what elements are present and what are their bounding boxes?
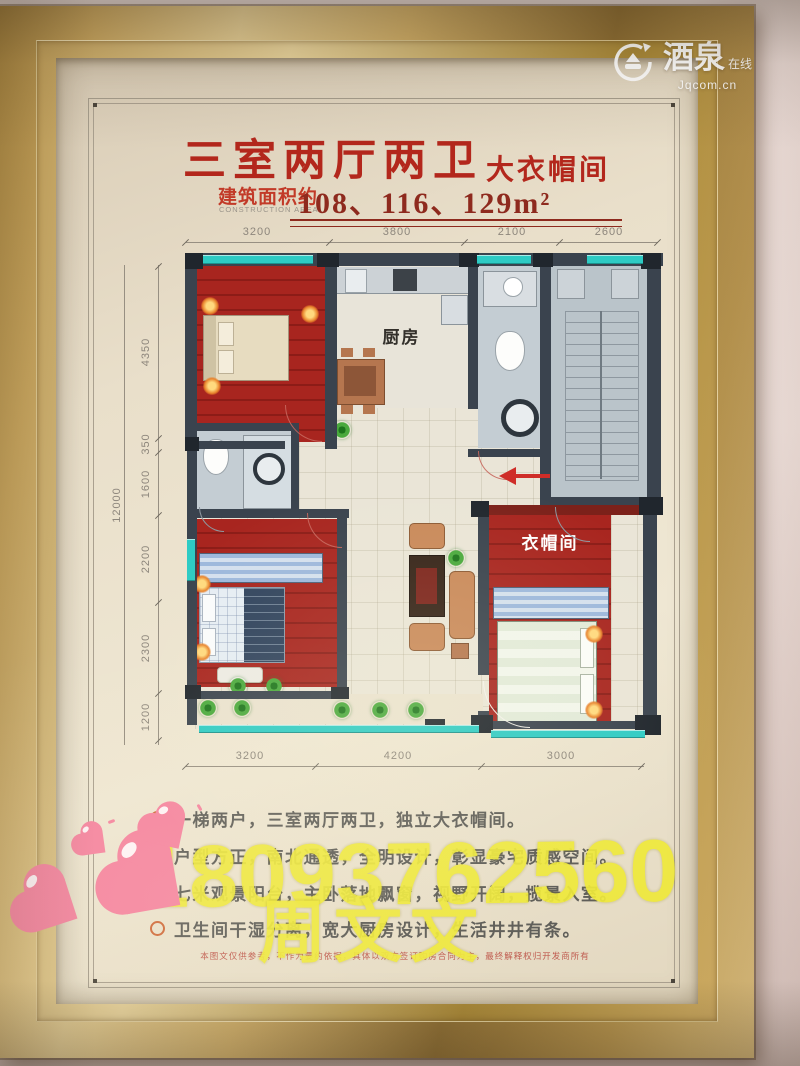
bed — [203, 315, 289, 381]
column-block — [185, 253, 203, 269]
wall-segment — [187, 423, 299, 431]
stair-landing-mat — [557, 269, 585, 299]
dim-label: 2100 — [498, 226, 526, 238]
fridge — [441, 295, 468, 325]
stairs — [565, 311, 639, 481]
blanket — [244, 588, 284, 662]
lamp-glow — [585, 701, 603, 719]
headboard — [204, 316, 216, 380]
shower-drain — [253, 453, 285, 485]
plant — [233, 699, 251, 717]
wall-segment — [291, 423, 299, 513]
wall-segment — [187, 691, 347, 699]
area-values: 108、116、129m² — [298, 178, 551, 222]
column-block — [317, 253, 339, 267]
dim-label: 12000 — [111, 487, 123, 523]
column-block — [185, 437, 199, 451]
wardrobe — [199, 553, 323, 583]
window-strip — [587, 255, 643, 264]
heart-gloss — [24, 873, 40, 890]
wall-segment — [478, 721, 657, 729]
lamp-glow — [203, 377, 221, 395]
window-strip — [187, 539, 195, 581]
site-logo-icon — [610, 39, 656, 85]
column-block — [459, 253, 479, 267]
dim-label: 4350 — [140, 338, 152, 366]
dim-label: 1200 — [140, 703, 152, 731]
column-block — [471, 501, 489, 517]
heart-sticker — [118, 852, 181, 915]
pillow — [218, 350, 234, 374]
entrance-arrow-shaft — [514, 474, 550, 478]
window-strip — [477, 255, 531, 264]
site-url: Jqcom.cn — [663, 78, 752, 92]
floor-plan: 厨房 — [185, 253, 663, 741]
wall-segment — [643, 505, 657, 733]
kitchen-label: 厨房 — [335, 323, 468, 348]
wardrobe — [493, 587, 609, 619]
dim-label: 4200 — [384, 750, 412, 762]
site-name: 酒泉 — [663, 40, 725, 75]
window-strip — [199, 725, 479, 733]
photo-scene: 三室两厅两卫 大衣帽间 建筑面积约 CONSTRUCTION AREA 108、… — [0, 0, 800, 1066]
column-block — [641, 253, 661, 269]
dim-label: 2300 — [140, 634, 152, 662]
plant — [447, 549, 465, 567]
dim-line-bottom — [186, 766, 644, 767]
chair — [341, 405, 353, 414]
kitchen-sink — [345, 269, 367, 293]
column-block — [639, 497, 663, 515]
wall-segment — [468, 253, 478, 409]
side-table — [451, 643, 469, 659]
dim-label: 350 — [140, 433, 152, 454]
dim-label: 3200 — [236, 750, 264, 762]
armchair — [409, 523, 445, 549]
plant — [199, 699, 217, 717]
column-block — [185, 685, 201, 699]
wall-segment — [647, 253, 661, 505]
armchair — [409, 623, 445, 651]
stair-divider — [600, 311, 602, 479]
lamp-glow — [201, 297, 219, 315]
chair — [341, 348, 353, 357]
border-corner-dot — [93, 979, 97, 983]
watermark-name: 周文文 — [258, 896, 486, 971]
border-corner-dot — [671, 103, 675, 107]
column-block — [331, 687, 349, 699]
heart-sticker — [149, 813, 185, 849]
basin — [503, 277, 523, 297]
table-rug — [416, 568, 437, 604]
window-strip — [491, 730, 645, 738]
heart-gloss — [81, 825, 90, 834]
dim-label: 3000 — [547, 750, 575, 762]
bed — [199, 587, 285, 663]
dim-line-left-outer — [124, 265, 125, 745]
plant — [407, 701, 425, 719]
dim-label: 3200 — [243, 226, 271, 238]
heart-gloss — [119, 839, 140, 861]
stair-landing-mat — [611, 269, 639, 299]
stove — [393, 269, 417, 291]
table-top — [344, 366, 376, 396]
site-suffix: 在线 — [728, 57, 752, 71]
washing-machine — [501, 399, 539, 437]
plant — [371, 701, 389, 719]
site-watermark: 酒泉在线 Jqcom.cn — [610, 32, 752, 92]
wall-segment — [478, 505, 489, 675]
cloakroom-label: 衣帽间 — [489, 529, 611, 554]
pillow — [218, 322, 234, 346]
wall-segment — [540, 253, 551, 505]
heart-gloss — [158, 805, 170, 815]
border-corner-dot — [671, 979, 675, 983]
border-corner-dot — [93, 103, 97, 107]
column-block — [533, 253, 553, 267]
sofa — [449, 571, 475, 639]
area-underline — [290, 219, 622, 227]
window-strip — [203, 255, 313, 264]
pillow — [202, 594, 216, 622]
dim-line-top — [186, 242, 658, 243]
dining-table — [337, 359, 385, 405]
chair — [363, 348, 375, 357]
dim-label: 2600 — [595, 226, 623, 238]
lamp-glow — [585, 625, 603, 643]
chair — [363, 405, 375, 414]
toilet — [495, 331, 525, 371]
heart-sticker — [81, 831, 106, 856]
site-logo-text: 酒泉在线 Jqcom.cn — [663, 32, 752, 92]
wall-segment — [325, 253, 337, 449]
wall-segment — [193, 441, 285, 449]
dim-label: 2200 — [140, 545, 152, 573]
dim-line-left-inner — [158, 265, 159, 745]
wall-segment — [185, 253, 197, 447]
coffee-table — [409, 555, 445, 617]
dim-label: 1600 — [140, 470, 152, 498]
lamp-glow — [301, 305, 319, 323]
plant — [333, 701, 351, 719]
dim-label: 3800 — [383, 226, 411, 238]
